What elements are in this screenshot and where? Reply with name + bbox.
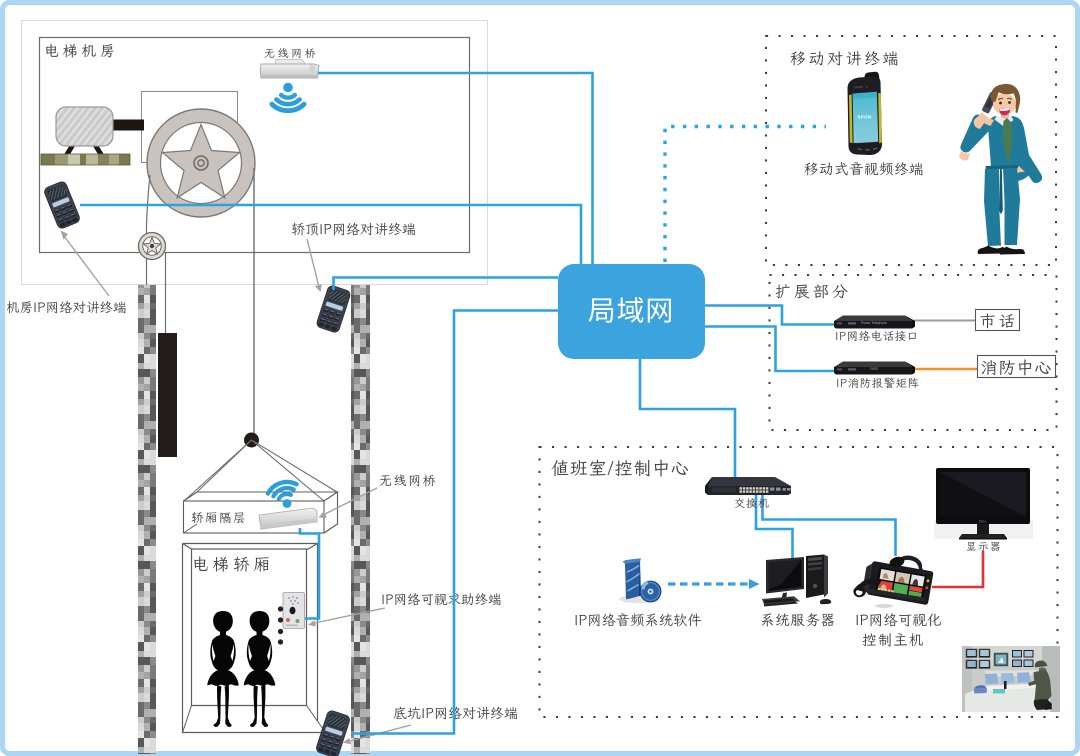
svg-text:SPON: SPON	[857, 115, 872, 120]
svg-text:DELL: DELL	[979, 520, 988, 524]
svg-text:Power Telephone: Power Telephone	[861, 321, 887, 325]
svg-text:FIRE: FIRE	[870, 367, 878, 371]
